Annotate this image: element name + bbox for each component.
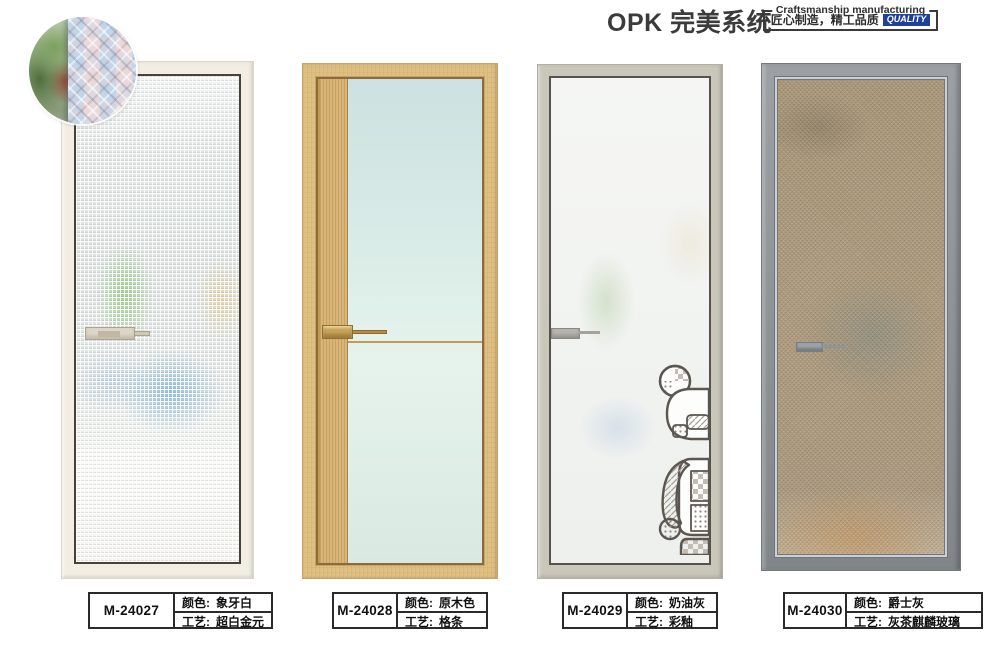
quality-badge: QUALITY — [883, 14, 931, 26]
door-4-handle — [796, 342, 823, 352]
craft-value: 格条 — [439, 613, 463, 630]
craft-label: 工艺: — [854, 613, 882, 630]
door-2-handle-bar — [352, 330, 387, 334]
spec-table-1: M-24027 颜色: 象牙白 工艺: 超白金元 — [88, 592, 273, 629]
color-label: 颜色: — [854, 594, 882, 611]
catalog-page: OPK 完美系统 Craftsmanship manufacturing 匠心制… — [0, 0, 1000, 650]
door-2-wood-stile — [318, 79, 348, 563]
color-row: 颜色: 象牙白 — [175, 594, 271, 611]
color-label: 颜色: — [635, 594, 663, 611]
craft-label: 工艺: — [635, 613, 663, 630]
door-3-frosted-glass — [549, 76, 711, 565]
craft-value: 彩釉 — [669, 613, 693, 630]
door-1-handle-bar — [134, 331, 150, 336]
spec-table-2: M-24028 颜色: 原木色 工艺: 格条 — [332, 592, 488, 629]
color-row: 颜色: 奶油灰 — [628, 594, 716, 611]
door-1-patterned-glass — [74, 74, 241, 564]
color-label: 颜色: — [405, 594, 433, 611]
spec-table-4: M-24030 颜色: 爵士灰 工艺: 灰茶麒麟玻璃 — [783, 592, 983, 629]
door-figure-2 — [303, 64, 497, 578]
door-figure-3 — [538, 65, 722, 578]
craft-row: 工艺: 超白金元 — [175, 611, 271, 630]
model-number: M-24030 — [785, 594, 847, 627]
model-number: M-24029 — [564, 594, 628, 627]
door-2-frosted-glass — [348, 79, 482, 563]
craft-row: 工艺: 彩釉 — [628, 611, 716, 630]
door-4-interior — [775, 77, 947, 557]
craft-row: 工艺: 格条 — [398, 611, 486, 630]
craft-value: 超白金元 — [216, 613, 264, 630]
spec-table-3: M-24029 颜色: 奶油灰 工艺: 彩釉 — [562, 592, 718, 629]
door-2-interior — [316, 77, 484, 565]
craft-label: 工艺: — [182, 613, 210, 630]
teddy-bear-graphic — [653, 359, 709, 555]
door-3-handle — [551, 328, 580, 339]
color-row: 颜色: 爵士灰 — [847, 594, 981, 611]
model-number: M-24028 — [334, 594, 398, 627]
door-figure-1 — [62, 62, 253, 578]
door-figure-4 — [762, 64, 960, 570]
color-label: 颜色: — [182, 594, 210, 611]
door-2-gold-divider — [348, 341, 482, 343]
color-value: 奶油灰 — [669, 594, 705, 611]
craft-value: 灰茶麒麟玻璃 — [888, 613, 960, 630]
door-2-handle — [322, 325, 353, 339]
color-value: 象牙白 — [216, 594, 252, 611]
diamond-glass-texture — [68, 17, 136, 124]
tagline-chinese: 匠心制造，精工品质 — [771, 11, 879, 28]
model-number: M-24027 — [90, 594, 175, 627]
door-4-textured-glass — [777, 79, 945, 555]
brand-logo: OPK 完美系统 — [607, 3, 772, 39]
craft-label: 工艺: — [405, 613, 433, 630]
door-4-handle-bar — [822, 345, 846, 348]
tagline-box: Craftsmanship manufacturing 匠心制造，精工品质 QU… — [763, 10, 938, 31]
color-value: 爵士灰 — [888, 594, 924, 611]
craft-row: 工艺: 灰茶麒麟玻璃 — [847, 611, 981, 630]
color-value: 原木色 — [439, 594, 475, 611]
glass-detail-inset — [29, 17, 136, 124]
door-3-handle-bar — [579, 331, 600, 334]
door-1-handle — [85, 327, 135, 340]
tagline-row: 匠心制造，精工品质 QUALITY — [765, 11, 936, 28]
color-row: 颜色: 原木色 — [398, 594, 486, 611]
